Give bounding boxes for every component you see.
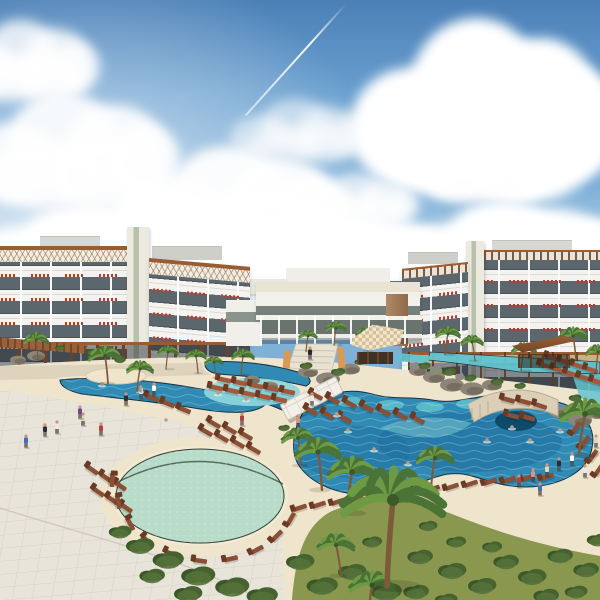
flowering-bush <box>430 365 442 374</box>
rock <box>10 356 26 365</box>
palm-tree <box>436 327 460 356</box>
rock <box>460 382 484 395</box>
thatched-hut <box>348 324 404 366</box>
hut-base <box>357 352 393 365</box>
kids-pool-sparkle <box>116 449 284 543</box>
pool-pavilion <box>512 334 576 370</box>
palm-tree <box>326 322 346 346</box>
palm-island <box>86 368 146 384</box>
pavilion-roof <box>512 334 576 356</box>
ground-layer <box>0 0 600 600</box>
pavilion-base <box>518 354 569 368</box>
shrub <box>55 345 65 351</box>
resort-rendering <box>0 0 600 600</box>
flowering-bush <box>455 373 465 381</box>
hut-roof <box>348 324 404 354</box>
